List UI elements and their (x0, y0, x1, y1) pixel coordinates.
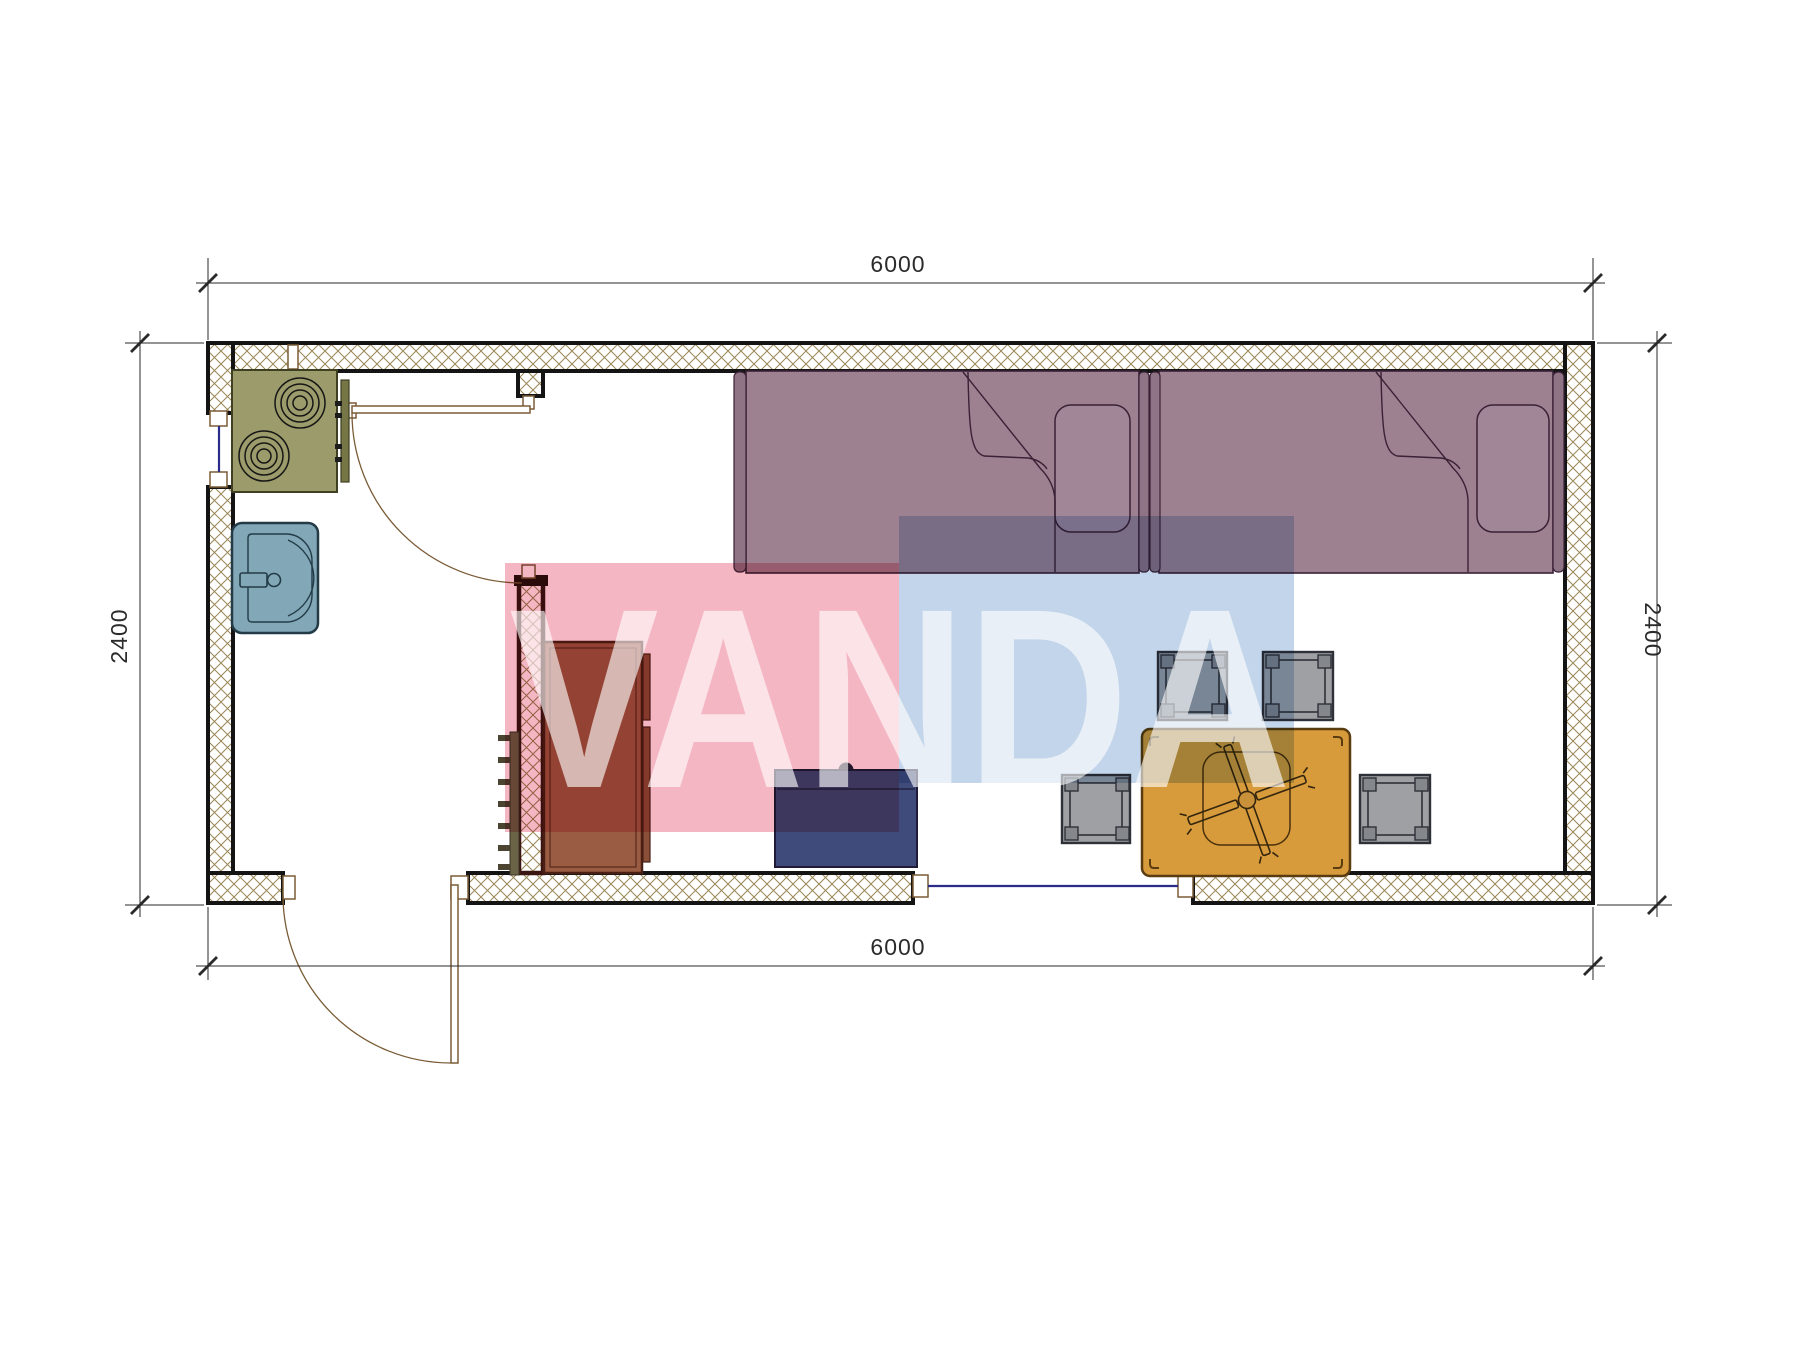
frame-entry-left (283, 876, 295, 899)
bed-right-pillow (1477, 405, 1549, 532)
stool-right (1360, 775, 1430, 843)
frame-window-bottom-right (1178, 875, 1193, 897)
wall-left-upper (208, 343, 233, 413)
stove-panel (341, 380, 349, 482)
interior-door (352, 406, 530, 583)
entrance-door-arc (283, 895, 451, 1063)
sink-knob (268, 574, 281, 587)
frame-window-left-bottom (210, 472, 227, 487)
interior-door-leaf (352, 406, 530, 413)
stove (232, 370, 349, 492)
wall-top (208, 343, 1593, 371)
dim-label-right: 2400 (1640, 602, 1666, 657)
wall-bottom-right (1193, 873, 1593, 903)
sink-faucet (240, 573, 267, 587)
wall-bottom-mid (468, 873, 913, 903)
bed-left-footboard (734, 372, 746, 572)
entrance-door (283, 885, 458, 1063)
bed-right-headboard (1553, 372, 1564, 572)
dim-label-bottom: 6000 (870, 934, 925, 960)
floor-plan-canvas: 6000 6000 2400 2400 VANDA (0, 0, 1800, 1350)
wall-pier (518, 371, 543, 396)
bed-left-pillow (1055, 405, 1130, 532)
watermark-text: VANDA (509, 556, 1291, 842)
dim-label-top: 6000 (870, 251, 925, 277)
sink (232, 523, 318, 633)
wall-right (1565, 343, 1593, 903)
entrance-door-leaf (451, 885, 458, 1063)
frame-window-bottom-left (913, 875, 928, 897)
frame-window-left-top (210, 411, 227, 426)
interior-door-arc (352, 413, 522, 583)
floor-plan-drawing: 6000 6000 2400 2400 VANDA (0, 0, 1800, 1350)
stove-body (232, 370, 337, 492)
wall-left-lower (208, 487, 233, 903)
wall-bottom-left (208, 873, 283, 903)
dim-label-left: 2400 (106, 608, 132, 663)
frame-top-wall (288, 345, 298, 369)
